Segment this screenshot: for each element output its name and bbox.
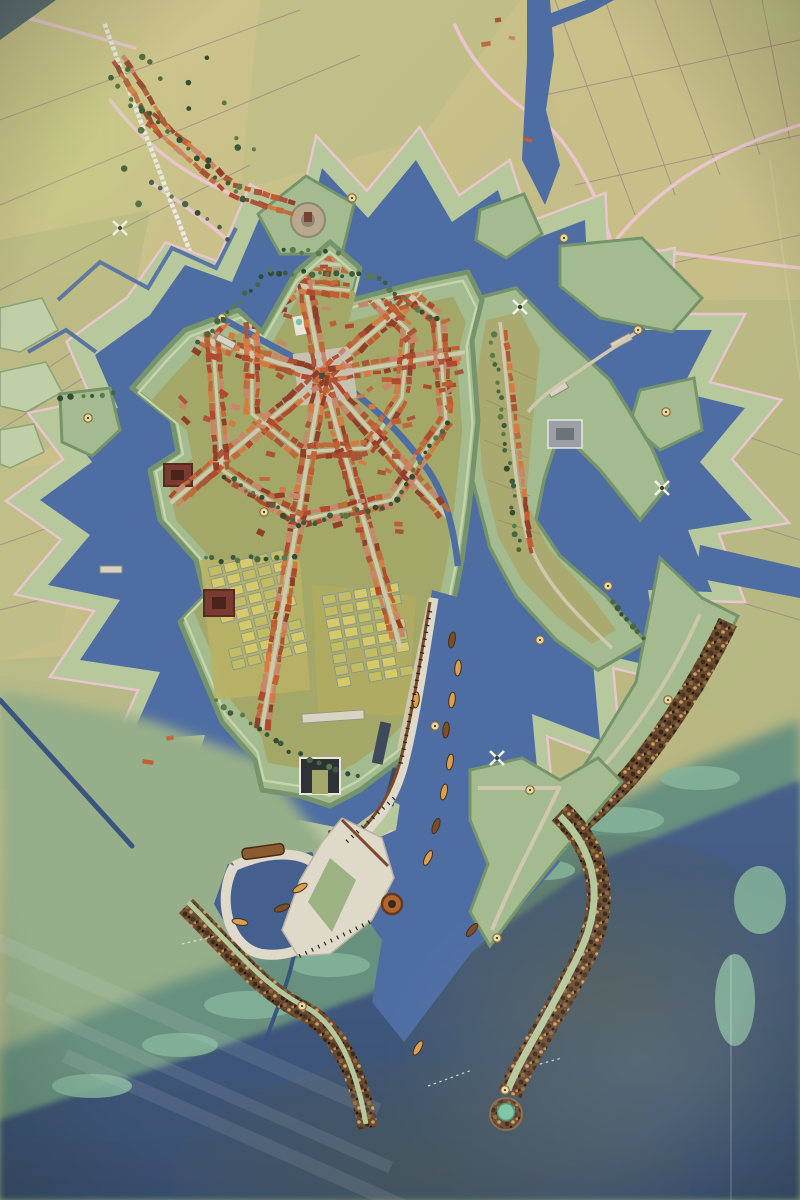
scale-model-scene bbox=[0, 0, 800, 1200]
fortress-model-photo bbox=[0, 0, 800, 1200]
photo-artifacts bbox=[0, 0, 800, 1200]
